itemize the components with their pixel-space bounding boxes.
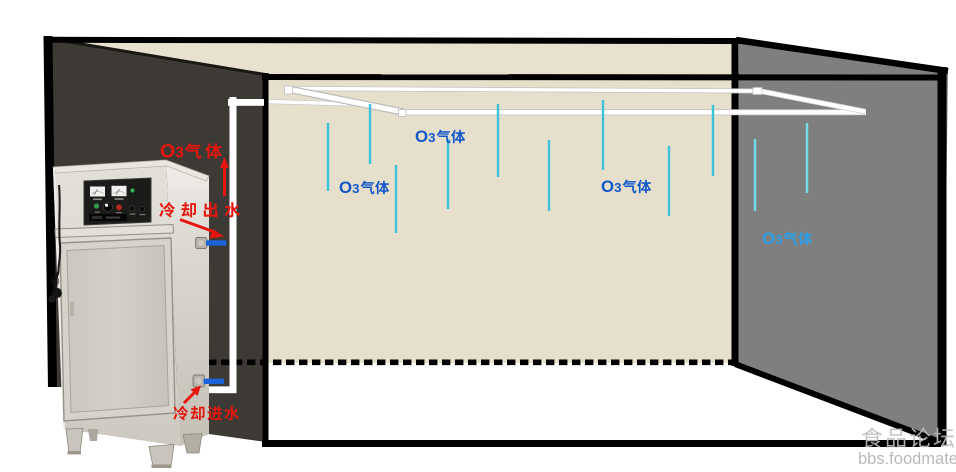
svg-text:3: 3 xyxy=(614,180,621,195)
svg-text:O: O xyxy=(601,177,614,196)
svg-text:O: O xyxy=(762,229,775,248)
svg-text:3: 3 xyxy=(175,145,184,162)
svg-text:bbs.foodmate: bbs.foodmate xyxy=(858,450,956,468)
svg-text:3: 3 xyxy=(428,130,435,145)
svg-text:O: O xyxy=(160,141,175,163)
svg-text:3: 3 xyxy=(352,181,359,196)
svg-text:3: 3 xyxy=(775,232,782,247)
svg-text:O: O xyxy=(339,178,352,197)
svg-text:O: O xyxy=(415,127,428,146)
